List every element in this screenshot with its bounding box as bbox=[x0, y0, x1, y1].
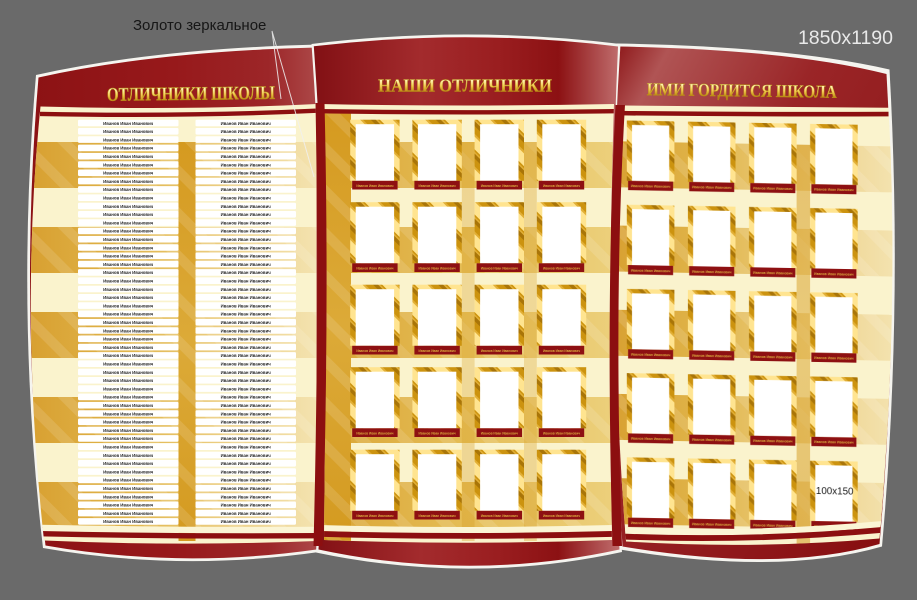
svg-text:Иванов Иван Иванович: Иванов Иван Иванович bbox=[221, 362, 272, 367]
svg-text:Иванов Иван Иванович: Иванов Иван Иванович bbox=[103, 353, 154, 358]
svg-text:1850х1190: 1850х1190 bbox=[798, 27, 893, 49]
svg-text:Иванов Иван Иванович: Иванов Иван Иванович bbox=[221, 245, 272, 250]
svg-text:100x150: 100x150 bbox=[816, 486, 854, 498]
svg-text:Иванов Иван Иванович: Иванов Иван Иванович bbox=[221, 386, 272, 391]
svg-text:Иванов Иван Иванович: Иванов Иван Иванович bbox=[481, 514, 518, 518]
svg-text:Иванов Иван Иванович: Иванов Иван Иванович bbox=[103, 469, 154, 474]
svg-text:Иванов Иван Иванович: Иванов Иван Иванович bbox=[221, 196, 272, 201]
svg-text:Иванов Иван Иванович: Иванов Иван Иванович bbox=[543, 349, 580, 353]
svg-text:Иванов Иван Иванович: Иванов Иван Иванович bbox=[221, 204, 272, 209]
svg-text:Иванов Иван Иванович: Иванов Иван Иванович bbox=[103, 262, 154, 267]
svg-text:Иванов Иван Иванович: Иванов Иван Иванович bbox=[221, 395, 272, 400]
svg-text:Иванов Иван Иванович: Иванов Иван Иванович bbox=[103, 519, 154, 524]
svg-text:Иванов Иван Иванович: Иванов Иван Иванович bbox=[221, 312, 272, 317]
svg-text:Иванов Иван Иванович: Иванов Иван Иванович bbox=[753, 355, 793, 360]
svg-text:Иванов Иван Иванович: Иванов Иван Иванович bbox=[419, 431, 456, 435]
svg-text:Иванов Иван Иванович: Иванов Иван Иванович bbox=[221, 146, 272, 151]
svg-text:Иванов Иван Иванович: Иванов Иван Иванович bbox=[221, 162, 272, 167]
svg-text:Иванов Иван Иванович: Иванов Иван Иванович bbox=[103, 287, 154, 292]
svg-text:Иванов Иван Иванович: Иванов Иван Иванович bbox=[103, 179, 154, 184]
svg-text:Иванов Иван Иванович: Иванов Иван Иванович bbox=[221, 320, 272, 325]
svg-text:Иванов Иван Иванович: Иванов Иван Иванович bbox=[221, 461, 272, 466]
svg-text:Иванов Иван Иванович: Иванов Иван Иванович bbox=[753, 439, 793, 444]
svg-text:Иванов Иван Иванович: Иванов Иван Иванович bbox=[103, 486, 154, 491]
svg-text:Иванов Иван Иванович: Иванов Иван Иванович bbox=[221, 503, 272, 508]
svg-text:Иванов Иван Иванович: Иванов Иван Иванович bbox=[419, 349, 456, 353]
svg-text:Иванов Иван Иванович: Иванов Иван Иванович bbox=[221, 295, 272, 300]
svg-text:Иванов Иван Иванович: Иванов Иван Иванович bbox=[814, 272, 854, 277]
svg-text:Иванов Иван Иванович: Иванов Иван Иванович bbox=[103, 146, 154, 151]
svg-text:ОТЛИЧНИКИ ШКОЛЫ: ОТЛИЧНИКИ ШКОЛЫ bbox=[107, 83, 275, 106]
svg-text:Иванов Иван Иванович: Иванов Иван Иванович bbox=[103, 312, 154, 317]
svg-text:Иванов Иван Иванович: Иванов Иван Иванович bbox=[221, 237, 272, 242]
svg-text:Иванов Иван Иванович: Иванов Иван Иванович bbox=[221, 420, 272, 425]
svg-text:Иванов Иван Иванович: Иванов Иван Иванович bbox=[103, 370, 154, 375]
svg-text:Иванов Иван Иванович: Иванов Иван Иванович bbox=[103, 328, 154, 333]
svg-text:Иванов Иван Иванович: Иванов Иван Иванович bbox=[221, 469, 272, 474]
svg-text:Иванов Иван Иванович: Иванов Иван Иванович bbox=[356, 514, 393, 518]
svg-text:Иванов Иван Иванович: Иванов Иван Иванович bbox=[103, 212, 154, 217]
svg-text:Иванов Иван Иванович: Иванов Иван Иванович bbox=[221, 370, 272, 375]
svg-text:Иванов Иван Иванович: Иванов Иван Иванович bbox=[221, 270, 272, 275]
svg-text:Иванов Иван Иванович: Иванов Иван Иванович bbox=[221, 303, 272, 308]
svg-text:Иванов Иван Иванович: Иванов Иван Иванович bbox=[481, 431, 518, 435]
svg-text:Иванов Иван Иванович: Иванов Иван Иванович bbox=[221, 519, 272, 524]
svg-text:Иванов Иван Иванович: Иванов Иван Иванович bbox=[103, 279, 154, 284]
svg-text:Иванов Иван Иванович: Иванов Иван Иванович bbox=[221, 179, 272, 184]
svg-text:Иванов Иван Иванович: Иванов Иван Иванович bbox=[221, 353, 272, 358]
svg-text:НАШИ ОТЛИЧНИКИ: НАШИ ОТЛИЧНИКИ bbox=[378, 76, 552, 96]
svg-text:Иванов Иван Иванович: Иванов Иван Иванович bbox=[103, 229, 154, 234]
svg-text:Иванов Иван Иванович: Иванов Иван Иванович bbox=[753, 523, 793, 528]
svg-text:Иванов Иван Иванович: Иванов Иван Иванович bbox=[103, 337, 154, 342]
svg-text:Иванов Иван Иванович: Иванов Иван Иванович bbox=[103, 204, 154, 209]
svg-text:Иванов Иван Иванович: Иванов Иван Иванович bbox=[419, 184, 456, 188]
svg-text:Иванов Иван Иванович: Иванов Иван Иванович bbox=[753, 186, 793, 191]
svg-text:Иванов Иван Иванович: Иванов Иван Иванович bbox=[221, 478, 272, 483]
svg-text:Иванов Иван Иванович: Иванов Иван Иванович bbox=[543, 431, 580, 435]
svg-text:Иванов Иван Иванович: Иванов Иван Иванович bbox=[103, 320, 154, 325]
svg-text:Иванов Иван Иванович: Иванов Иван Иванович bbox=[221, 254, 272, 259]
svg-text:Иванов Иван Иванович: Иванов Иван Иванович bbox=[631, 353, 671, 358]
svg-text:Иванов Иван Иванович: Иванов Иван Иванович bbox=[631, 268, 671, 273]
svg-text:Иванов Иван Иванович: Иванов Иван Иванович bbox=[221, 436, 272, 441]
svg-text:Иванов Иван Иванович: Иванов Иван Иванович bbox=[221, 328, 272, 333]
svg-text:Иванов Иван Иванович: Иванов Иван Иванович bbox=[221, 411, 272, 416]
svg-text:Иванов Иван Иванович: Иванов Иван Иванович bbox=[103, 303, 154, 308]
svg-text:Иванов Иван Иванович: Иванов Иван Иванович bbox=[103, 196, 154, 201]
svg-text:Иванов Иван Иванович: Иванов Иван Иванович bbox=[103, 129, 154, 134]
svg-text:Иванов Иван Иванович: Иванов Иван Иванович bbox=[631, 521, 671, 526]
svg-text:Иванов Иван Иванович: Иванов Иван Иванович bbox=[221, 212, 272, 217]
svg-text:Иванов Иван Иванович: Иванов Иван Иванович bbox=[103, 362, 154, 367]
svg-text:Иванов Иван Иванович: Иванов Иван Иванович bbox=[103, 386, 154, 391]
svg-text:Иванов Иван Иванович: Иванов Иван Иванович bbox=[419, 514, 456, 518]
svg-text:Иванов Иван Иванович: Иванов Иван Иванович bbox=[481, 184, 518, 188]
svg-text:Иванов Иван Иванович: Иванов Иван Иванович bbox=[103, 436, 154, 441]
svg-text:Иванов Иван Иванович: Иванов Иван Иванович bbox=[692, 354, 732, 359]
svg-text:Иванов Иван Иванович: Иванов Иван Иванович bbox=[419, 266, 456, 270]
svg-text:Иванов Иван Иванович: Иванов Иван Иванович bbox=[221, 494, 272, 499]
svg-text:Иванов Иван Иванович: Иванов Иван Иванович bbox=[481, 266, 518, 270]
svg-text:Иванов Иван Иванович: Иванов Иван Иванович bbox=[103, 270, 154, 275]
svg-text:Иванов Иван Иванович: Иванов Иван Иванович bbox=[103, 453, 154, 458]
svg-text:Иванов Иван Иванович: Иванов Иван Иванович bbox=[692, 185, 732, 190]
svg-text:Иванов Иван Иванович: Иванов Иван Иванович bbox=[356, 266, 393, 270]
svg-text:Иванов Иван Иванович: Иванов Иван Иванович bbox=[103, 420, 154, 425]
svg-text:Иванов Иван Иванович: Иванов Иван Иванович bbox=[221, 229, 272, 234]
svg-text:Иванов Иван Иванович: Иванов Иван Иванович bbox=[221, 403, 272, 408]
svg-text:Иванов Иван Иванович: Иванов Иван Иванович bbox=[814, 188, 854, 193]
svg-text:Иванов Иван Иванович: Иванов Иван Иванович bbox=[103, 121, 154, 126]
svg-text:Иванов Иван Иванович: Иванов Иван Иванович bbox=[103, 395, 154, 400]
svg-text:Иванов Иван Иванович: Иванов Иван Иванович bbox=[221, 453, 272, 458]
svg-text:Иванов Иван Иванович: Иванов Иван Иванович bbox=[103, 445, 154, 450]
svg-text:Иванов Иван Иванович: Иванов Иван Иванович bbox=[221, 486, 272, 491]
svg-text:Иванов Иван Иванович: Иванов Иван Иванович bbox=[221, 511, 272, 516]
svg-text:Иванов Иван Иванович: Иванов Иван Иванович bbox=[103, 345, 154, 350]
svg-text:Иванов Иван Иванович: Иванов Иван Иванович bbox=[103, 378, 154, 383]
svg-text:Золото зеркальное: Золото зеркальное bbox=[133, 17, 266, 34]
svg-text:Иванов Иван Иванович: Иванов Иван Иванович bbox=[103, 295, 154, 300]
svg-text:Иванов Иван Иванович: Иванов Иван Иванович bbox=[356, 184, 393, 188]
svg-text:Иванов Иван Иванович: Иванов Иван Иванович bbox=[543, 266, 580, 270]
svg-text:Иванов Иван Иванович: Иванов Иван Иванович bbox=[692, 269, 732, 274]
svg-text:Иванов Иван Иванович: Иванов Иван Иванович bbox=[221, 171, 272, 176]
svg-text:Иванов Иван Иванович: Иванов Иван Иванович bbox=[103, 162, 154, 167]
svg-text:Иванов Иван Иванович: Иванов Иван Иванович bbox=[356, 349, 393, 353]
svg-text:Иванов Иван Иванович: Иванов Иван Иванович bbox=[221, 262, 272, 267]
svg-text:Иванов Иван Иванович: Иванов Иван Иванович bbox=[356, 431, 393, 435]
svg-text:Иванов Иван Иванович: Иванов Иван Иванович bbox=[814, 440, 854, 445]
svg-text:Иванов Иван Иванович: Иванов Иван Иванович bbox=[103, 220, 154, 225]
svg-text:Иванов Иван Иванович: Иванов Иван Иванович bbox=[103, 187, 154, 192]
svg-text:Иванов Иван Иванович: Иванов Иван Иванович bbox=[221, 154, 272, 159]
svg-text:Иванов Иван Иванович: Иванов Иван Иванович bbox=[221, 137, 272, 142]
svg-text:Иванов Иван Иванович: Иванов Иван Иванович bbox=[103, 245, 154, 250]
svg-text:Иванов Иван Иванович: Иванов Иван Иванович bbox=[631, 184, 671, 189]
svg-text:Иванов Иван Иванович: Иванов Иван Иванович bbox=[103, 478, 154, 483]
svg-text:Иванов Иван Иванович: Иванов Иван Иванович bbox=[221, 337, 272, 342]
svg-text:Иванов Иван Иванович: Иванов Иван Иванович bbox=[543, 184, 580, 188]
svg-text:Иванов Иван Иванович: Иванов Иван Иванович bbox=[103, 254, 154, 259]
svg-text:Иванов Иван Иванович: Иванов Иван Иванович bbox=[753, 271, 793, 276]
svg-text:Иванов Иван Иванович: Иванов Иван Иванович bbox=[221, 345, 272, 350]
svg-text:Иванов Иван Иванович: Иванов Иван Иванович bbox=[221, 279, 272, 284]
svg-text:Иванов Иван Иванович: Иванов Иван Иванович bbox=[221, 428, 272, 433]
svg-text:Иванов Иван Иванович: Иванов Иван Иванович bbox=[631, 437, 671, 442]
svg-text:ИМИ ГОРДИТСЯ ШКОЛА: ИМИ ГОРДИТСЯ ШКОЛА bbox=[647, 79, 837, 102]
svg-text:Иванов Иван Иванович: Иванов Иван Иванович bbox=[103, 461, 154, 466]
svg-text:Иванов Иван Иванович: Иванов Иван Иванович bbox=[221, 220, 272, 225]
svg-text:Иванов Иван Иванович: Иванов Иван Иванович bbox=[221, 121, 272, 126]
svg-text:Иванов Иван Иванович: Иванов Иван Иванович bbox=[103, 403, 154, 408]
svg-text:Иванов Иван Иванович: Иванов Иван Иванович bbox=[103, 503, 154, 508]
svg-text:Иванов Иван Иванович: Иванов Иван Иванович bbox=[103, 411, 154, 416]
svg-text:Иванов Иван Иванович: Иванов Иван Иванович bbox=[221, 445, 272, 450]
svg-text:Иванов Иван Иванович: Иванов Иван Иванович bbox=[692, 438, 732, 443]
svg-text:Иванов Иван Иванович: Иванов Иван Иванович bbox=[103, 511, 154, 516]
svg-text:Иванов Иван Иванович: Иванов Иван Иванович bbox=[814, 356, 854, 361]
svg-text:Иванов Иван Иванович: Иванов Иван Иванович bbox=[103, 171, 154, 176]
svg-text:Иванов Иван Иванович: Иванов Иван Иванович bbox=[103, 137, 154, 142]
svg-text:Иванов Иван Иванович: Иванов Иван Иванович bbox=[103, 494, 154, 499]
svg-text:Иванов Иван Иванович: Иванов Иван Иванович bbox=[221, 129, 272, 134]
svg-text:Иванов Иван Иванович: Иванов Иван Иванович bbox=[543, 514, 580, 518]
svg-text:Иванов Иван Иванович: Иванов Иван Иванович bbox=[692, 522, 732, 527]
svg-text:Иванов Иван Иванович: Иванов Иван Иванович bbox=[103, 237, 154, 242]
svg-text:Иванов Иван Иванович: Иванов Иван Иванович bbox=[221, 287, 272, 292]
svg-text:Иванов Иван Иванович: Иванов Иван Иванович bbox=[103, 428, 154, 433]
svg-text:Иванов Иван Иванович: Иванов Иван Иванович bbox=[221, 187, 272, 192]
svg-text:Иванов Иван Иванович: Иванов Иван Иванович bbox=[221, 378, 272, 383]
svg-text:Иванов Иван Иванович: Иванов Иван Иванович bbox=[103, 154, 154, 159]
svg-text:Иванов Иван Иванович: Иванов Иван Иванович bbox=[481, 349, 518, 353]
